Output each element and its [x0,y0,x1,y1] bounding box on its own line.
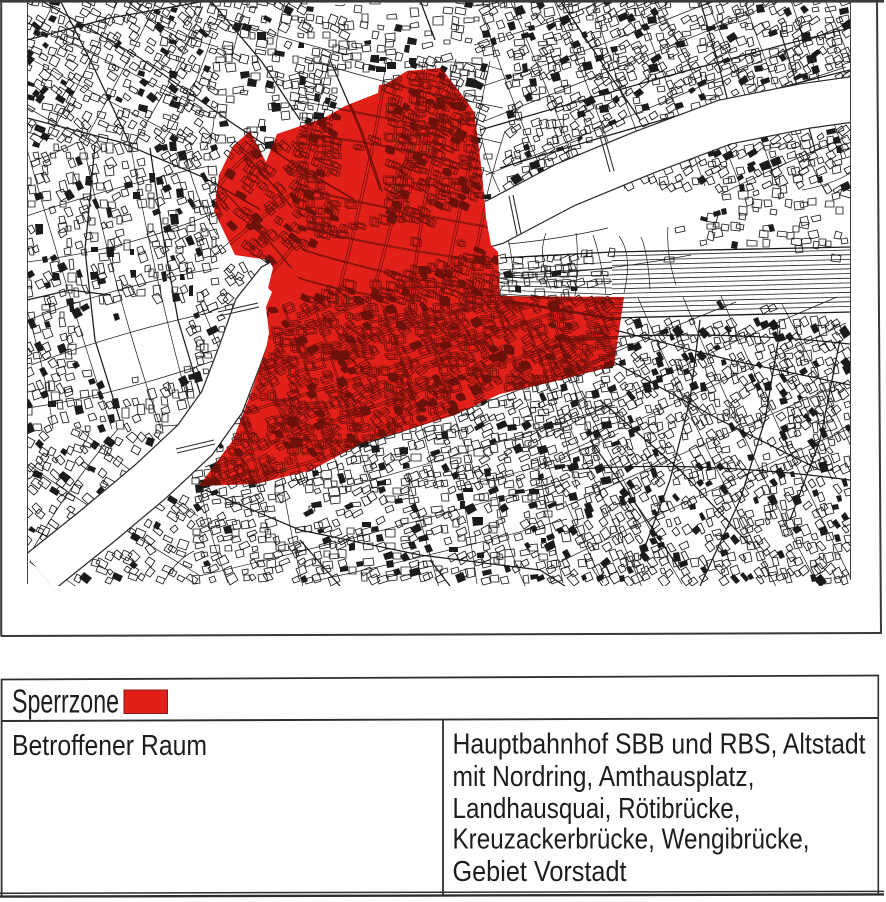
svg-text:Kreuzackerbrücke, Wengibrücke,: Kreuzackerbrücke, Wengibrücke, [453,824,810,856]
svg-text:Betroffener Raum: Betroffener Raum [12,730,207,762]
svg-text:Landhausquai, Rötibrücke,: Landhausquai, Rötibrücke, [453,793,741,825]
svg-text:Sperrzone: Sperrzone [12,683,119,720]
svg-text:mit Nordring, Amthausplatz,: mit Nordring, Amthausplatz, [453,761,755,793]
svg-text:Hauptbahnhof SBB und RBS, Alts: Hauptbahnhof SBB und RBS, Altstadt [453,729,866,761]
svg-text:Gebiet Vorstadt: Gebiet Vorstadt [453,856,627,888]
